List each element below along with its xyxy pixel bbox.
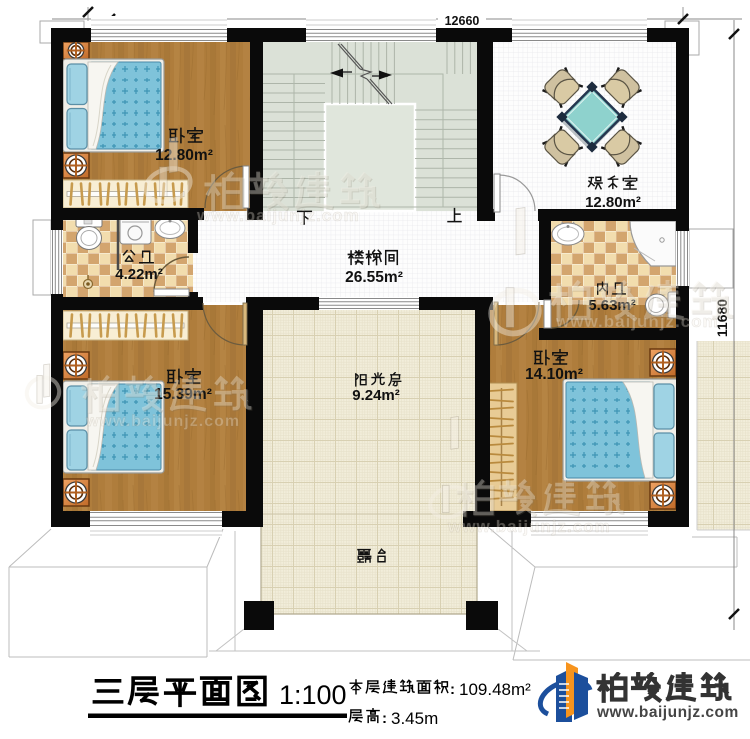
svg-text:12660: 12660 (445, 14, 480, 28)
svg-text:www.baijunjz.com: www.baijunjz.com (85, 413, 240, 430)
svg-text:26.55m²: 26.55m² (345, 269, 403, 286)
svg-text::: : (382, 710, 387, 727)
svg-text:1:100: 1:100 (279, 680, 347, 710)
svg-text:109.48m²: 109.48m² (459, 680, 531, 699)
svg-text:www.baijunjz.com: www.baijunjz.com (596, 704, 739, 721)
svg-text:14.10m²: 14.10m² (525, 366, 583, 383)
svg-text:12.80m²: 12.80m² (585, 194, 641, 211)
svg-text:4.22m²: 4.22m² (115, 266, 163, 283)
svg-text:www.baijunjz.com: www.baijunjz.com (447, 517, 611, 536)
svg-text::: : (450, 681, 455, 698)
svg-text:www.baijunjz.com: www.baijunjz.com (555, 312, 719, 331)
svg-text:3.45m: 3.45m (391, 709, 438, 728)
svg-text:www.baijunjz.com: www.baijunjz.com (196, 206, 360, 225)
svg-text:9.24m²: 9.24m² (352, 387, 400, 404)
svg-text:12.80m²: 12.80m² (155, 147, 213, 164)
